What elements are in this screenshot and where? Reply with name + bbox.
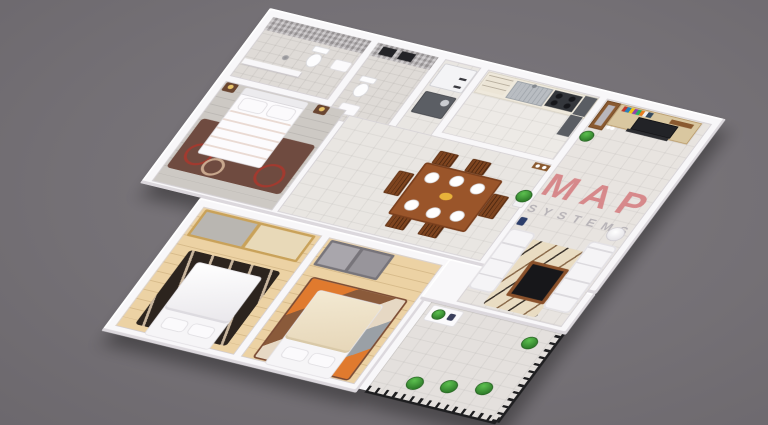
nightstand-right xyxy=(312,104,330,115)
topiary-icon xyxy=(402,375,427,391)
plate-icon xyxy=(467,182,488,196)
toilet-2-bowl xyxy=(349,82,372,98)
plate-icon xyxy=(401,198,422,212)
centerpiece-icon xyxy=(437,192,454,202)
pillow xyxy=(159,316,191,333)
apartment-floor-plan: MAP SYSTEMS xyxy=(39,8,726,425)
wardrobe-panel-wood xyxy=(245,225,312,260)
plate-icon xyxy=(447,209,468,223)
pillow xyxy=(185,323,217,340)
book-shelf-icon xyxy=(621,106,654,118)
shower-partition xyxy=(241,58,301,77)
plate-icon xyxy=(423,206,444,220)
toilet-2 xyxy=(348,75,378,98)
table-lamp-icon xyxy=(227,84,235,89)
toilet-1-bowl xyxy=(302,52,325,68)
washer-dial xyxy=(438,99,450,107)
pillow xyxy=(306,352,338,369)
nightstand-left xyxy=(221,82,239,93)
branch-vase-icon xyxy=(516,217,529,226)
topiary-icon xyxy=(437,378,462,394)
table-lamp-icon xyxy=(318,106,326,111)
decor-vases-icon xyxy=(605,125,616,131)
planter-box xyxy=(422,304,464,327)
toilet-1 xyxy=(301,46,331,69)
faucet-icon xyxy=(531,84,538,89)
floor-drain-icon xyxy=(281,54,291,60)
render-stage: MAP SYSTEMS xyxy=(0,0,768,425)
pillow xyxy=(279,346,311,363)
plate-icon xyxy=(422,171,443,185)
topiary-icon xyxy=(472,380,497,396)
plate-icon xyxy=(446,175,467,189)
balcony-tree-icon xyxy=(518,335,541,350)
planter-vase xyxy=(446,313,457,321)
